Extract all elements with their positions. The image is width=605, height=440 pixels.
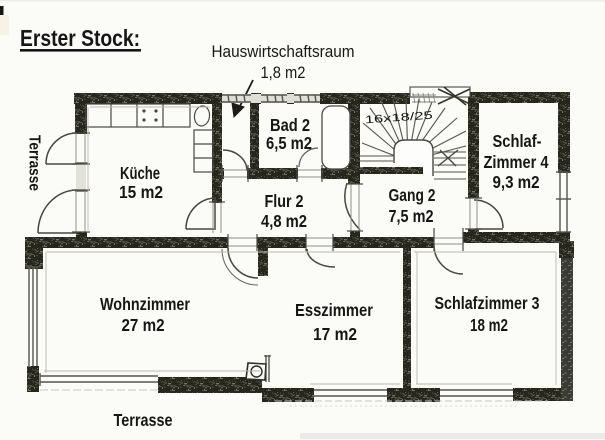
svg-text:Zimmer 4: Zimmer 4 xyxy=(484,152,549,172)
svg-text:1,8 m2: 1,8 m2 xyxy=(261,63,306,82)
svg-text:Gang 2: Gang 2 xyxy=(389,185,436,205)
svg-text:Bad 2: Bad 2 xyxy=(270,115,310,135)
svg-text:Terrasse: Terrasse xyxy=(114,410,173,430)
svg-text:6,5 m2: 6,5 m2 xyxy=(266,133,312,153)
svg-text:18 m2: 18 m2 xyxy=(470,315,508,335)
svg-text:15 m2: 15 m2 xyxy=(119,182,163,202)
svg-text:Hauswirtschaftsraum: Hauswirtschaftsraum xyxy=(212,42,355,61)
svg-text:Küche: Küche xyxy=(120,163,160,183)
svg-text:9,3 m2: 9,3 m2 xyxy=(493,172,540,192)
svg-text:Schlaf-: Schlaf- xyxy=(493,131,542,151)
svg-text:Terrasse: Terrasse xyxy=(26,135,43,191)
svg-text:4,8 m2: 4,8 m2 xyxy=(261,211,307,231)
svg-text:7,5 m2: 7,5 m2 xyxy=(389,206,434,226)
svg-text:Erster Stock:: Erster Stock: xyxy=(20,25,140,51)
svg-text:Schlafzimmer 3: Schlafzimmer 3 xyxy=(435,293,540,313)
svg-text:27 m2: 27 m2 xyxy=(122,315,165,335)
svg-text:Wohnzimmer: Wohnzimmer xyxy=(100,294,190,314)
svg-text:17 m2: 17 m2 xyxy=(313,324,357,344)
svg-text:Flur 2: Flur 2 xyxy=(265,191,304,211)
svg-text:Esszimmer: Esszimmer xyxy=(295,300,373,320)
